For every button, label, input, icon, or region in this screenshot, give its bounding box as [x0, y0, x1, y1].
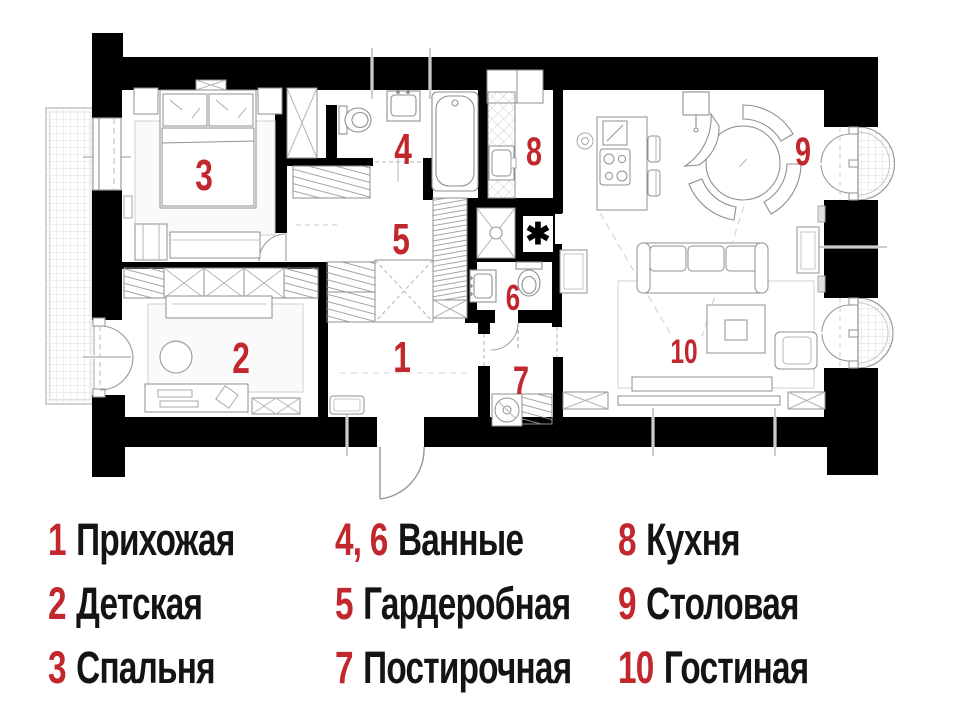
legend-label: Спальня — [76, 642, 215, 694]
legend-num: 9 — [618, 578, 636, 630]
legend-item-hallway: 1 Прихожая — [48, 508, 235, 572]
legend-item-wardrobe: 5 Гардеробная — [335, 572, 571, 636]
legend-num: 2 — [48, 578, 66, 630]
legend-label: Столовая — [646, 578, 799, 630]
bow-window-top — [858, 127, 895, 200]
legend-num: 8 — [618, 514, 636, 566]
star-symbol: ✱ — [525, 218, 550, 251]
bathroom-2-door — [491, 323, 518, 350]
entrance-door — [380, 447, 424, 499]
legend-item-living: 10 Гостиная — [618, 636, 808, 700]
room-number-6: 6 — [506, 278, 520, 318]
bow-window-bottom — [858, 298, 893, 368]
kids-room-furniture — [124, 268, 318, 414]
legend: 1 Прихожая 2 Детская 3 Спальня 4, 6 Ванн… — [0, 502, 960, 720]
legend-label: Ванные — [398, 514, 523, 566]
room-number-10: 10 — [670, 333, 697, 371]
shower — [477, 208, 515, 258]
legend-num: 1 — [48, 514, 66, 566]
legend-num: 4, 6 — [335, 514, 388, 566]
legend-label: Прихожая — [76, 514, 234, 566]
legend-item-dining: 9 Столовая — [618, 572, 808, 636]
legend-item-kitchen: 8 Кухня — [618, 508, 808, 572]
legend-item-bathrooms: 4, 6 Ванные — [335, 508, 571, 572]
legend-label: Кухня — [646, 514, 740, 566]
bow-doors-bottom — [822, 298, 858, 368]
room-number-8: 8 — [526, 129, 542, 174]
dining-furniture — [683, 92, 801, 220]
legend-label: Детская — [76, 578, 202, 630]
room-number-5: 5 — [392, 215, 410, 264]
legend-num: 7 — [335, 642, 353, 694]
room-number-3: 3 — [195, 151, 213, 200]
room-number-2: 2 — [232, 334, 250, 383]
legend-column-1: 1 Прихожая 2 Детская 3 Спальня — [48, 508, 300, 700]
legend-column-2: 4, 6 Ванные 5 Гардеробная 7 Постирочная — [335, 508, 654, 700]
legend-item-laundry: 7 Постирочная — [335, 636, 571, 700]
bedroom-window — [93, 118, 121, 190]
star-niche: ✱ — [523, 216, 553, 252]
legend-label: Постирочная — [363, 642, 571, 694]
legend-label: Гардеробная — [363, 578, 570, 630]
room-number-1: 1 — [393, 333, 411, 382]
legend-num: 3 — [48, 642, 66, 694]
legend-item-bedroom: 3 Спальня — [48, 636, 235, 700]
floor-plan: ✱ — [0, 0, 960, 505]
room-number-4: 4 — [394, 125, 412, 174]
living-furniture — [560, 206, 825, 409]
legend-num: 5 — [335, 578, 353, 630]
bow-doors-top — [821, 127, 858, 200]
kitchen-furniture — [487, 70, 660, 210]
floor-plan-page: ✱ — [0, 0, 960, 720]
legend-column-3: 8 Кухня 9 Столовая 10 Гостиная — [618, 508, 875, 700]
left-balcony — [46, 108, 94, 404]
legend-label: Гостиная — [664, 642, 809, 694]
room-number-9: 9 — [795, 129, 811, 174]
room-number-7: 7 — [513, 358, 529, 403]
bedroom-furniture — [124, 80, 317, 260]
legend-item-kids-room: 2 Детская — [48, 572, 235, 636]
legend-num: 10 — [618, 642, 654, 694]
